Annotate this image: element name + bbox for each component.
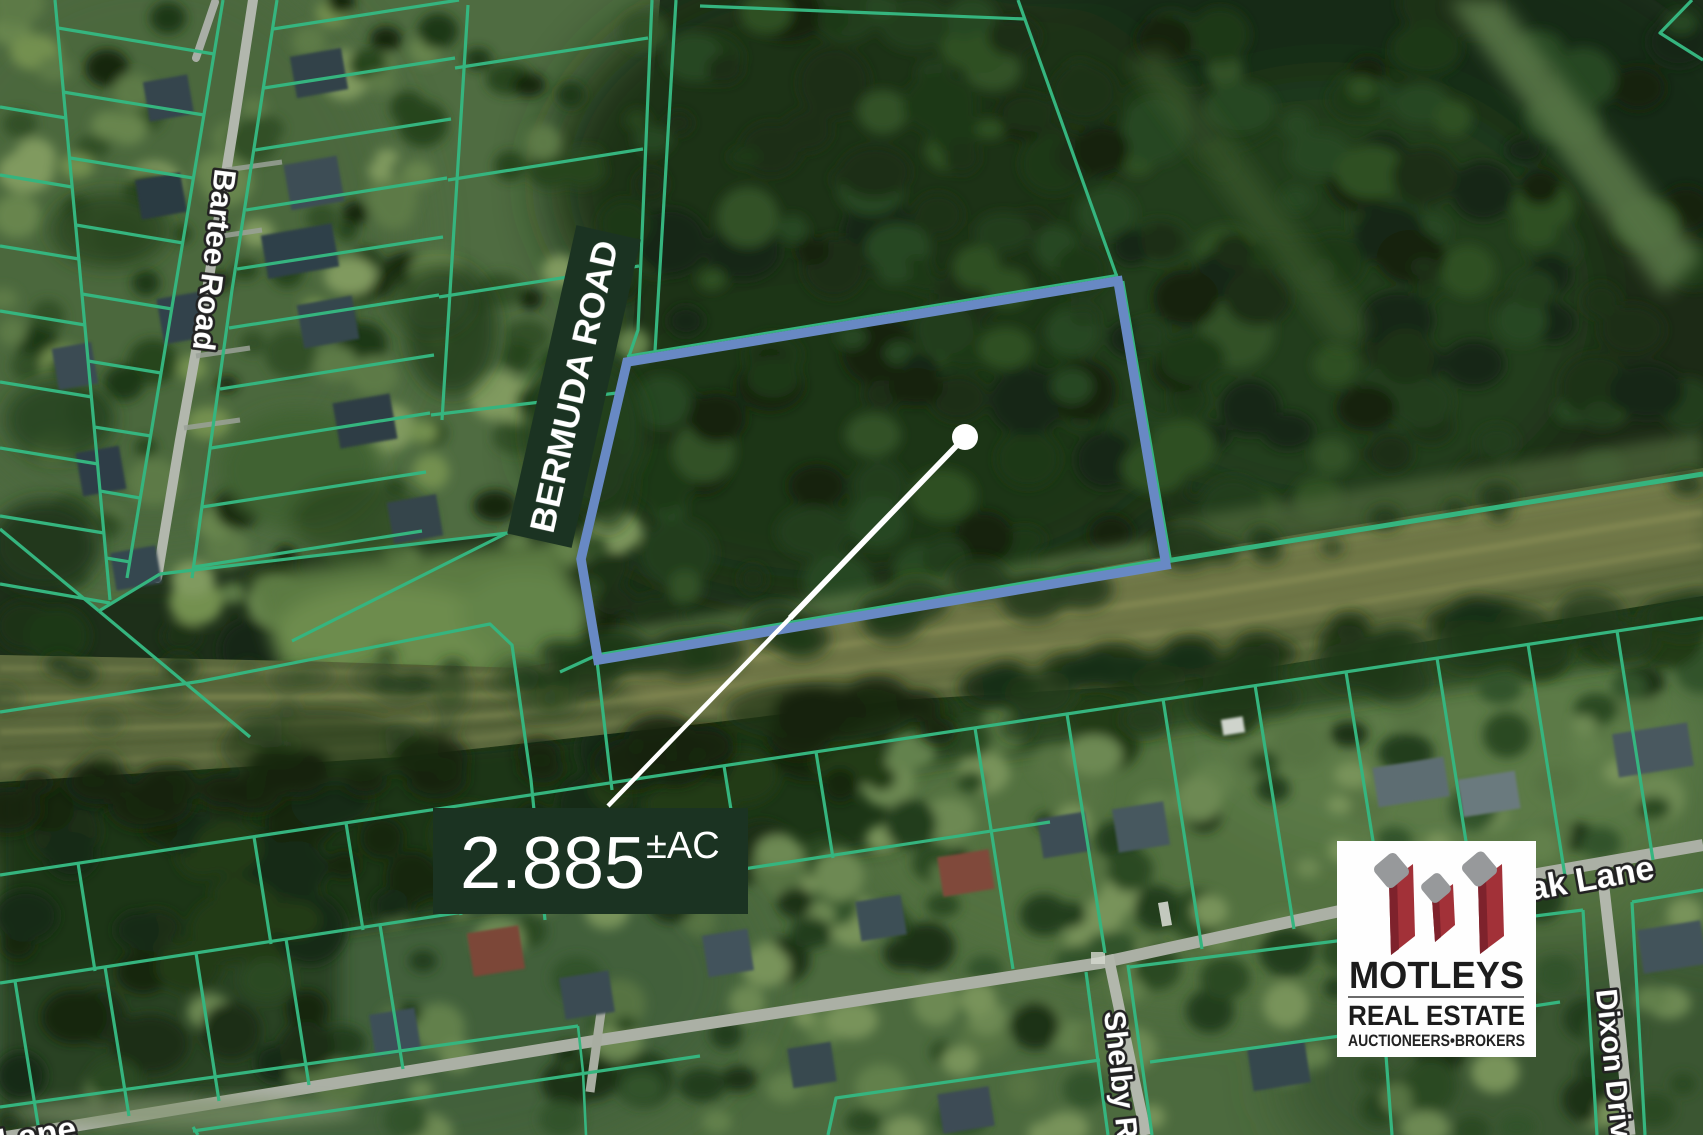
svg-text:AUCTIONEERS•BROKERS: AUCTIONEERS•BROKERS	[1348, 1032, 1525, 1050]
svg-text:2.885: 2.885	[460, 821, 645, 904]
svg-text:±AC: ±AC	[646, 825, 720, 867]
svg-text:MOTLEYS: MOTLEYS	[1349, 955, 1524, 997]
svg-text:REAL ESTATE: REAL ESTATE	[1348, 1000, 1525, 1031]
